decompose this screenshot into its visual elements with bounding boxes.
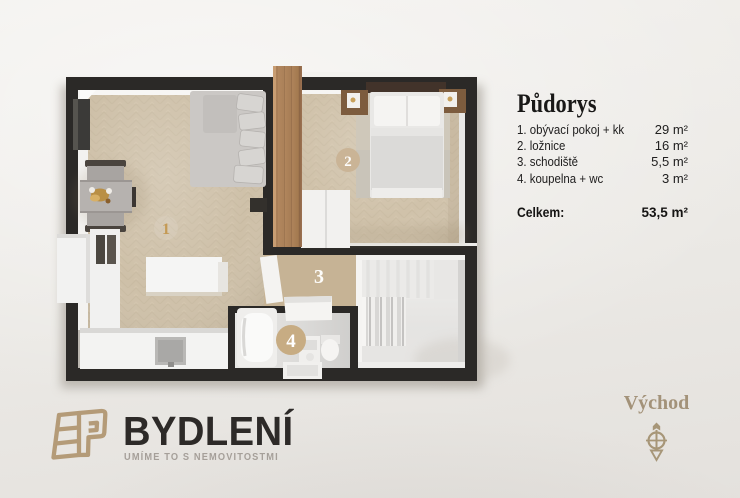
svg-text:4: 4 — [286, 331, 296, 352]
svg-text:2: 2 — [344, 154, 352, 170]
svg-text:1: 1 — [162, 221, 170, 238]
svg-text:3: 3 — [314, 266, 324, 288]
